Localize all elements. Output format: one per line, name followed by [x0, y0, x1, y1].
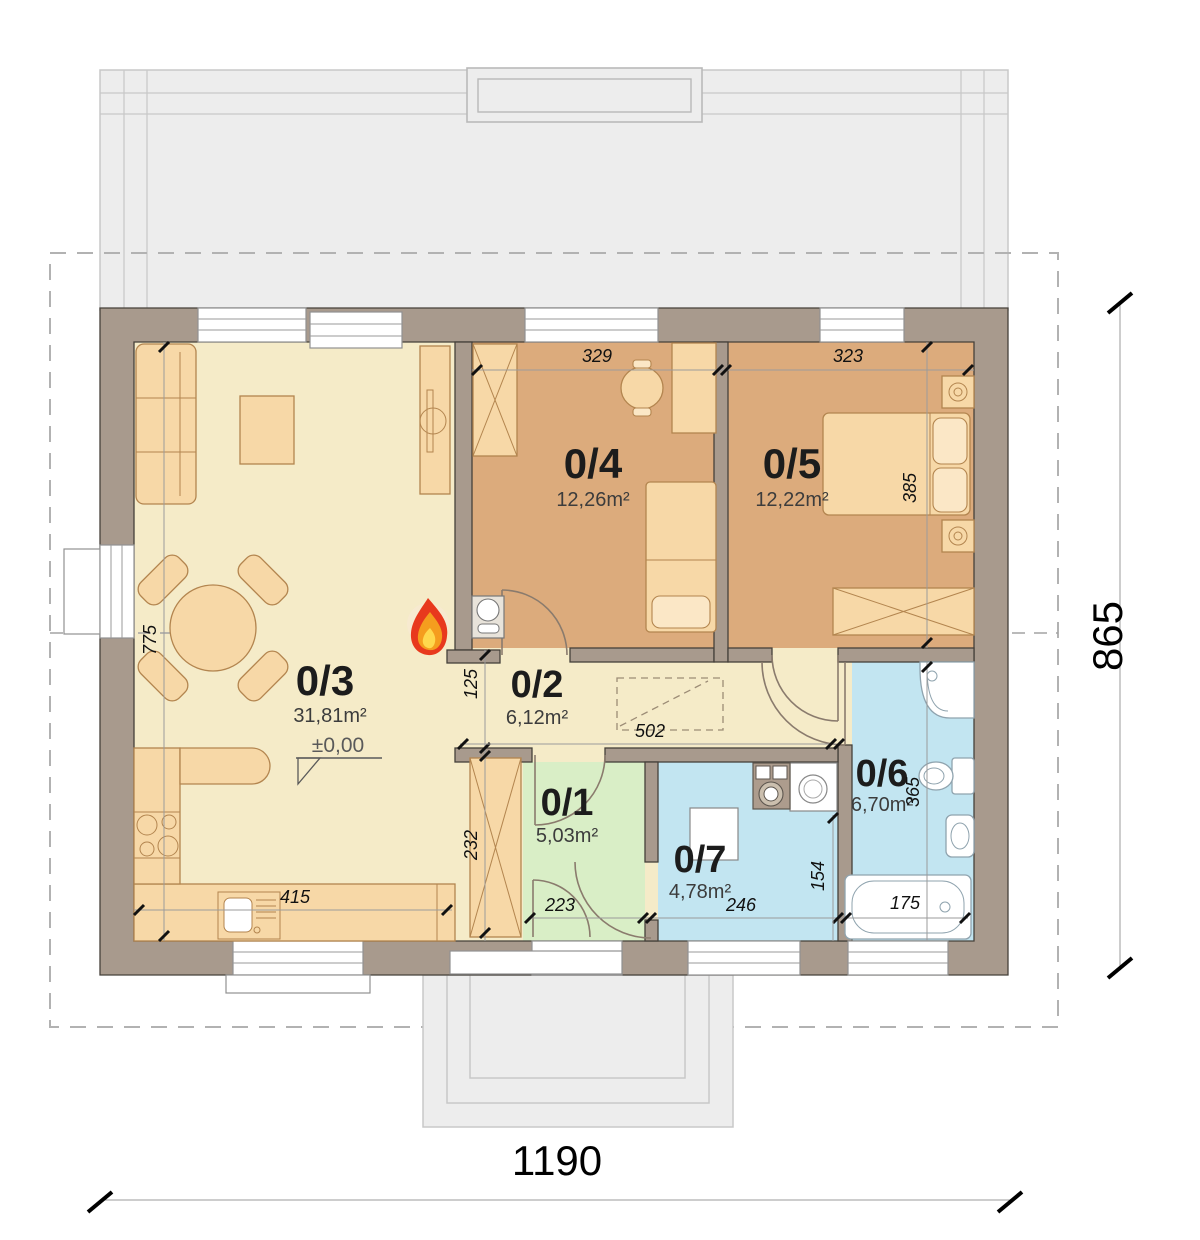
washbasin-bowl [477, 599, 499, 621]
desk-chair [621, 367, 663, 409]
pillow [933, 468, 967, 512]
floor-plan-canvas: 0/3 31,81m² ±0,00 0/2 6,12m² 0/4 12,26m²… [0, 0, 1200, 1240]
dim-125: 125 [461, 668, 481, 699]
window-living-left-sill [64, 549, 100, 634]
boiler-panel [756, 766, 770, 779]
room-area-05: 12,22m² [755, 489, 829, 511]
dim-865: 865 [1084, 601, 1131, 671]
dining-table [170, 585, 256, 671]
washing-machine-door [799, 775, 827, 803]
room-level-03: ±0,00 [312, 734, 364, 757]
dim-1190: 1190 [512, 1137, 602, 1184]
furniture-room05 [823, 376, 974, 635]
chimney-outer [467, 68, 702, 122]
wall-hall-07 [605, 748, 838, 762]
room-id-06: 0/6 [856, 753, 909, 795]
room-area-07: 4,78m² [669, 881, 732, 903]
desk [672, 343, 716, 433]
sink-basin [224, 898, 252, 932]
dim-223: 223 [544, 895, 575, 915]
room-area-04: 12,26m² [556, 489, 630, 511]
wall-06-top [838, 648, 974, 662]
chair-armrest [633, 360, 651, 368]
dim-246: 246 [725, 895, 757, 915]
entrance-threshold [450, 951, 622, 974]
pillow [933, 418, 967, 464]
washbasin-soap [478, 624, 499, 633]
dim-385: 385 [900, 472, 920, 503]
window-living-top-1 [198, 308, 306, 342]
wall-05-hall [728, 648, 772, 662]
window-kitchen-sill [226, 975, 370, 993]
window-room06 [848, 941, 948, 975]
window-room04 [525, 308, 658, 342]
room-id-05: 0/5 [763, 440, 821, 487]
dim-415: 415 [280, 887, 311, 907]
room-id-02: 0/2 [511, 664, 564, 706]
floor-plan-drawing: 0/3 31,81m² ±0,00 0/2 6,12m² 0/4 12,26m²… [0, 0, 1200, 1240]
coffee-table [240, 396, 294, 464]
dim-775: 775 [140, 624, 160, 655]
sofa [136, 344, 196, 504]
porch-steps [423, 975, 733, 1127]
overall-tick [88, 1192, 112, 1212]
room-id-03: 0/3 [296, 657, 354, 704]
window-living-top-2 [310, 312, 402, 348]
roof-outline [100, 68, 1008, 310]
boiler-panel [773, 766, 787, 779]
room-id-07: 0/7 [674, 839, 727, 881]
room-area-02: 6,12m² [506, 707, 569, 729]
wall-01-07-upper [645, 762, 658, 862]
room-area-01: 5,03m² [536, 825, 599, 847]
room-id-04: 0/4 [564, 440, 623, 487]
dim-365: 365 [903, 776, 923, 807]
dim-175: 175 [890, 893, 921, 913]
nightstand [942, 376, 974, 408]
overall-tick [998, 1192, 1022, 1212]
dim-329: 329 [582, 346, 612, 366]
chair-armrest [633, 408, 651, 416]
nightstand [942, 520, 974, 552]
kitchen-peninsula [180, 748, 270, 784]
pillow [652, 596, 710, 628]
boiler-drum-core [764, 787, 778, 801]
window-living-left [100, 545, 134, 638]
wall-03-04 [455, 342, 472, 650]
window-kitchen [233, 941, 363, 975]
wall-hall-stub [447, 650, 500, 663]
washbasin [946, 815, 974, 857]
dim-323: 323 [833, 346, 863, 366]
dim-502: 502 [635, 721, 665, 741]
window-room07 [688, 941, 800, 975]
toilet-tank [952, 758, 974, 794]
wall-04-hall [570, 648, 714, 662]
porch-step [470, 975, 685, 1078]
dim-154: 154 [808, 861, 828, 891]
window-room05 [820, 308, 904, 342]
room-area-03: 31,81m² [293, 705, 367, 727]
dim-232: 232 [461, 830, 481, 861]
room-id-01: 0/1 [541, 782, 594, 824]
